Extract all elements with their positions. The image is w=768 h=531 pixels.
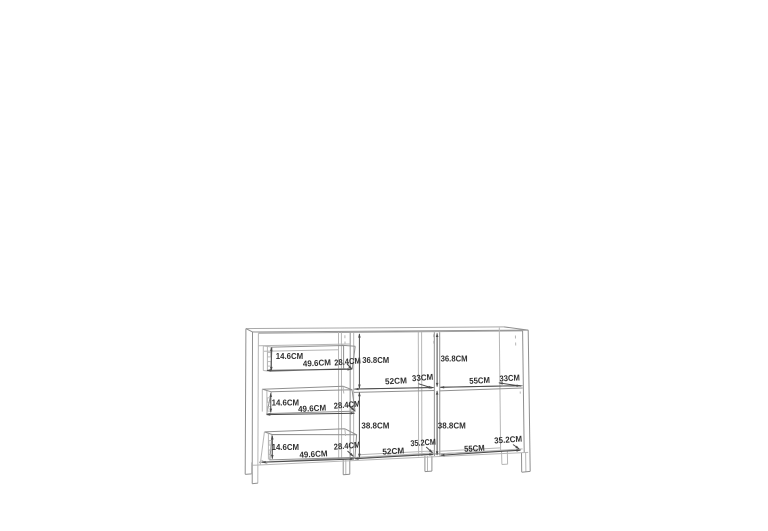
svg-text:33CM: 33CM — [412, 372, 434, 383]
svg-text:14.6CM: 14.6CM — [272, 398, 299, 408]
svg-text:52CM: 52CM — [382, 445, 404, 456]
svg-text:38.8CM: 38.8CM — [361, 421, 389, 431]
svg-text:36.8CM: 36.8CM — [441, 353, 468, 363]
svg-text:38.8CM: 38.8CM — [438, 420, 466, 430]
svg-text:28.4CM: 28.4CM — [333, 440, 360, 452]
svg-text:49.6CM: 49.6CM — [303, 357, 332, 368]
svg-text:49.6CM: 49.6CM — [299, 448, 328, 459]
svg-text:28.4CM: 28.4CM — [333, 399, 360, 411]
svg-text:35.2CM: 35.2CM — [410, 437, 436, 449]
svg-text:35.2CM: 35.2CM — [494, 434, 523, 446]
svg-text:36.8CM: 36.8CM — [362, 355, 389, 365]
svg-text:55CM: 55CM — [469, 375, 490, 386]
svg-text:52CM: 52CM — [385, 375, 407, 386]
svg-text:49.6CM: 49.6CM — [298, 403, 327, 414]
svg-text:14.6CM: 14.6CM — [272, 442, 299, 452]
svg-text:33CM: 33CM — [499, 372, 520, 383]
svg-text:55CM: 55CM — [464, 443, 485, 454]
svg-text:14.6CM: 14.6CM — [276, 351, 303, 361]
svg-text:28.4CM: 28.4CM — [334, 355, 361, 367]
